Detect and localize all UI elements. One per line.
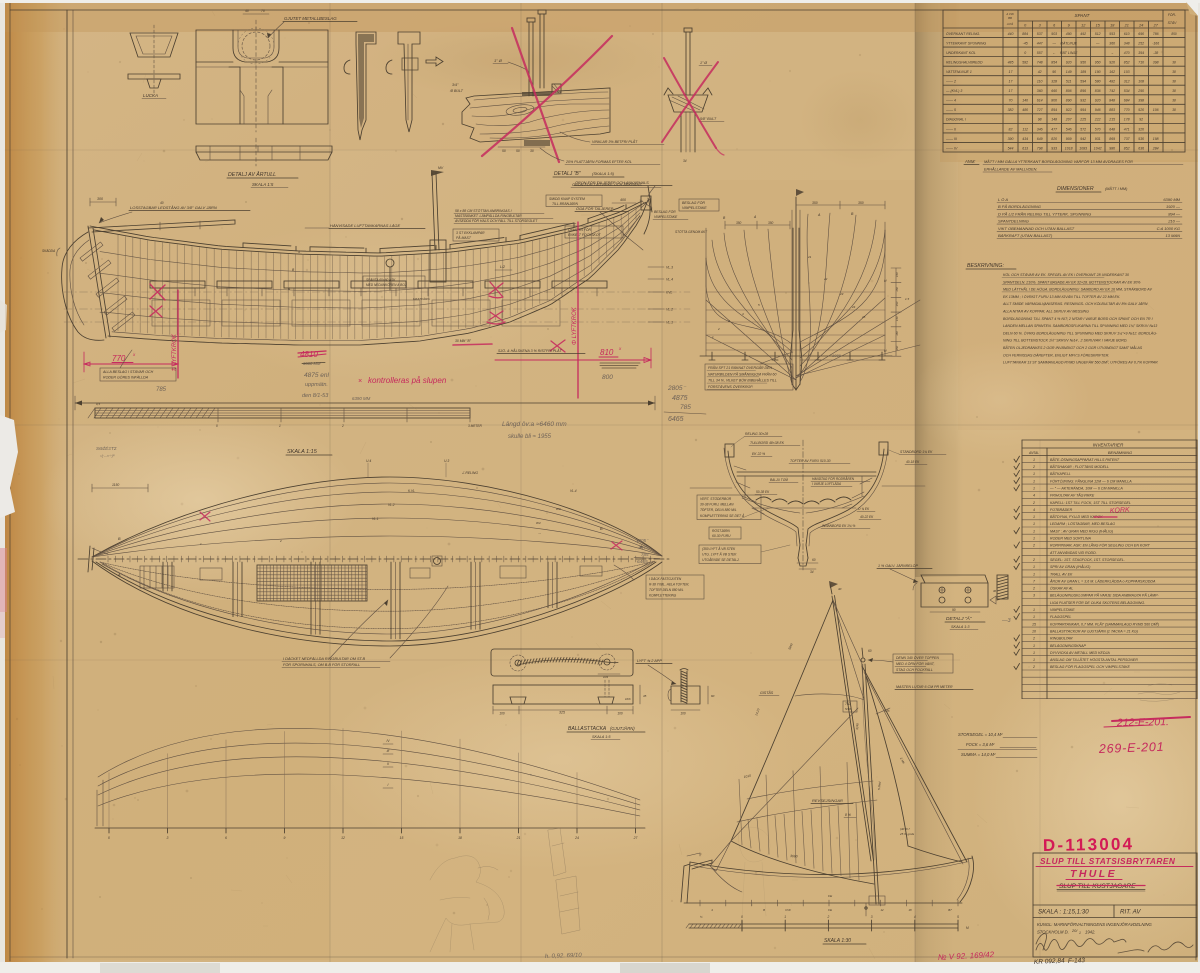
svg-text:25: 25 <box>861 315 866 319</box>
svg-text:108: 108 <box>1138 80 1144 84</box>
svg-text:1" Ø: 1" Ø <box>494 58 503 63</box>
svg-text:106: 106 <box>1153 108 1159 112</box>
svg-text:VIMPELSTAKE: VIMPELSTAKE <box>1050 608 1075 612</box>
svg-text:25 % gods: 25 % gods <box>899 832 915 836</box>
svg-text:1" Ø: 1" Ø <box>700 61 707 65</box>
svg-text:852: 852 <box>1124 60 1130 64</box>
svg-text:1: 1 <box>1033 515 1035 519</box>
svg-text:932: 932 <box>1080 99 1086 103</box>
svg-text:21: 21 <box>807 255 812 259</box>
svg-text:806: 806 <box>1066 89 1072 93</box>
svg-text:OXHORN FÖR: OXHORN FÖR <box>568 228 592 232</box>
svg-text:40-18 EK: 40-18 EK <box>906 460 920 464</box>
svg-text:BESLAG FÖR: BESLAG FÖR <box>654 210 676 214</box>
svg-text:785: 785 <box>680 404 691 411</box>
svg-text:20/: 20/ <box>1071 929 1078 933</box>
svg-text:LUFTTANKAR 13 ST SAMMANLAGD RY: LUFTTANKAR 13 ST SAMMANLAGD RYMD UNGEFÄR… <box>1003 361 1158 365</box>
svg-text:×: × <box>530 773 532 777</box>
svg-text:684: 684 <box>1124 99 1130 103</box>
svg-text:I DÄCK FASTGJUTEN: I DÄCK FASTGJUTEN <box>649 577 682 581</box>
svg-text:VL.1: VL.1 <box>372 517 379 521</box>
svg-text:485: 485 <box>1008 60 1014 64</box>
svg-text:FÖR SPORNHALS, OM B.B FÖR STOR: FÖR SPORNHALS, OM B.B FÖR STORFALL <box>283 663 360 667</box>
svg-text:544: 544 <box>1008 146 1014 150</box>
svg-text:←: ← <box>1052 51 1056 55</box>
svg-text:RELING 30×28: RELING 30×28 <box>745 432 768 436</box>
svg-text:90: 90 <box>952 608 956 612</box>
svg-text:710: 710 <box>1138 60 1144 64</box>
svg-text:2: 2 <box>717 327 720 331</box>
svg-text:(GJUTJÄRN): (GJUTJÄRN) <box>610 726 635 731</box>
svg-text:≈(·↔×·÷) ͫ: ≈(·↔×·÷) ͫ <box>100 454 116 458</box>
svg-text:III: III <box>387 749 390 753</box>
svg-text:6465: 6465 <box>637 559 648 565</box>
svg-text:DELN 60 %. ÖVRIG BORDLÄGGNING: DELN 60 %. ÖVRIG BORDLÄGGNING TILL SPUNN… <box>1003 331 1158 335</box>
svg-text:O ¾ EK: O ¾ EK <box>858 507 870 511</box>
svg-text:C:A 1000 KG: C:A 1000 KG <box>1157 226 1180 231</box>
svg-text:50-38 EK: 50-38 EK <box>756 490 770 494</box>
svg-text:482: 482 <box>1109 80 1115 84</box>
svg-text:LIGA PLATSER FÖR DE OLIKA SKOT: LIGA PLATSER FÖR DE OLIKA SKOTENS BELÄGG… <box>1050 601 1145 605</box>
svg-text:2: 2 <box>1032 637 1035 641</box>
svg-text:492: 492 <box>1080 32 1086 36</box>
svg-text:440: 440 <box>1008 32 1014 36</box>
svg-text:A: A <box>817 213 821 217</box>
svg-text:UTG. LYFT Å VB STEK: UTG. LYFT Å VB STEK <box>702 552 737 557</box>
svg-text:BESLAG FÖR FLAGGSPEL OCH VIMPE: BESLAG FÖR FLAGGSPEL OCH VIMPELSTAKE <box>1050 665 1131 669</box>
svg-text:480: 480 <box>1022 108 1028 112</box>
svg-text:30: 30 <box>993 589 997 593</box>
svg-text:L Ö A: L Ö A <box>998 197 1008 202</box>
svg-text:uppmätn.: uppmätn. <box>305 382 328 388</box>
svg-text:SPANT: SPANT <box>1075 13 1091 18</box>
svg-text:KOMPLETTERING: KOMPLETTERING <box>649 594 677 598</box>
svg-text:346: 346 <box>1037 127 1043 131</box>
svg-text:894 —: 894 — <box>1168 211 1181 216</box>
svg-text:350: 350 <box>858 201 864 205</box>
svg-text:1: 1 <box>1033 537 1035 541</box>
svg-text:A PÅ: A PÅ <box>1006 21 1013 26</box>
svg-text:1083: 1083 <box>1079 146 1087 150</box>
svg-text:GJUTET METALLBESLAG: GJUTET METALLBESLAG <box>284 16 337 21</box>
svg-text:I: I <box>388 783 389 787</box>
svg-text:2: 2 <box>1032 465 1035 469</box>
svg-text:3240: 3240 <box>855 723 860 730</box>
svg-text:24: 24 <box>1138 24 1143 28</box>
svg-text:STÄV: STÄV <box>1168 21 1178 25</box>
svg-text:SUMMA = 14,0 M²: SUMMA = 14,0 M² <box>961 752 996 757</box>
svg-text:↔: ↔ <box>538 531 541 535</box>
svg-text:SKÄDDA: SKÄDDA <box>42 249 55 253</box>
svg-text:ATT ANVÄNDAS VID RODD.: ATT ANVÄNDAS VID RODD. <box>1049 551 1097 555</box>
svg-text:34: 34 <box>683 159 687 163</box>
svg-text:MASTFÄRG: MASTFÄRG <box>413 297 430 301</box>
svg-text:BESLAG FÖR: BESLAG FÖR <box>682 201 705 205</box>
svg-text:770: 770 <box>1124 108 1130 112</box>
svg-text:40: 40 <box>838 587 842 591</box>
svg-text:12: 12 <box>341 836 345 840</box>
svg-text:6390 MM: 6390 MM <box>1163 197 1180 202</box>
svg-text:21: 21 <box>516 836 521 840</box>
svg-text:(350 LYFT Å VB STEK: (350 LYFT Å VB STEK <box>702 546 736 551</box>
svg-text:90: 90 <box>1052 70 1056 74</box>
svg-text:DETALJ "B": DETALJ "B" <box>554 171 581 177</box>
svg-text:ÖRON FÖR TALJEREP OCH ANKARHAL: ÖRON FÖR TALJEREP OCH ANKARHALS <box>575 181 649 185</box>
svg-text:-45: -45 <box>1023 41 1028 45</box>
svg-text:150: 150 <box>895 272 899 277</box>
svg-text:98: 98 <box>1038 118 1042 122</box>
svg-text:SKALA 1:30: SKALA 1:30 <box>824 938 851 944</box>
svg-text:U.4: U.4 <box>366 459 371 463</box>
svg-text:6390 MM: 6390 MM <box>352 396 371 401</box>
svg-text:594: 594 <box>1080 80 1086 84</box>
svg-text:—— II: —— II <box>945 127 956 131</box>
svg-text:SPRI AV GRAN (IHÅLIG): SPRI AV GRAN (IHÅLIG) <box>1050 564 1090 569</box>
svg-text:HANDTAG FÖR RODRÅREN: HANDTAG FÖR RODRÅREN <box>812 476 855 481</box>
svg-text:1: 1 <box>1033 458 1035 462</box>
svg-text:STORSEGEL = 10,4 M²: STORSEGEL = 10,4 M² <box>958 732 1003 737</box>
svg-text:100: 100 <box>680 712 686 716</box>
svg-text:TILL 34 %, VILKET BÖR BIBEHÅLL: TILL 34 %, VILKET BÖR BIBEHÅLLES TILL <box>708 378 777 383</box>
svg-text:178: 178 <box>1124 118 1130 122</box>
svg-text:150: 150 <box>895 316 899 321</box>
svg-text:DIAGONAL I: DIAGONAL I <box>946 118 966 122</box>
svg-text:1: 1 <box>1033 486 1035 490</box>
svg-text:(MÅTT I MM): (MÅTT I MM) <box>1105 186 1128 191</box>
svg-text:W3: W3 <box>556 507 561 511</box>
svg-text:636: 636 <box>1138 146 1144 150</box>
svg-text:909: 909 <box>1066 137 1072 141</box>
svg-text:553: 553 <box>1109 32 1115 36</box>
svg-text:92: 92 <box>1139 118 1143 122</box>
svg-text:3660: 3660 <box>790 854 798 859</box>
svg-text:572: 572 <box>1080 127 1086 131</box>
svg-text:BENÄMNING: BENÄMNING <box>1108 450 1132 455</box>
svg-text:SKALA : 1:15,1:30: SKALA : 1:15,1:30 <box>1038 909 1089 916</box>
svg-text:MED LÄTTHÅL I DE HÖGA. BORDLÄG: MED LÄTTHÅL I DE HÖGA. BORDLÄGGNING: SAM… <box>1003 287 1152 292</box>
svg-text:AVSEDDA FÖR HALS OCH FALL TILL: AVSEDDA FÖR HALS OCH FALL TILL STORSEGLE… <box>454 219 538 223</box>
svg-text:348: 348 <box>1124 41 1130 45</box>
svg-text:II: II <box>387 762 389 766</box>
svg-text:150: 150 <box>895 345 899 350</box>
svg-text:den 8/1-53: den 8/1-53 <box>302 393 329 399</box>
svg-text:883: 883 <box>1109 108 1115 112</box>
svg-text:434: 434 <box>1022 137 1028 141</box>
svg-text:312: 312 <box>1124 80 1130 84</box>
svg-text:104: 104 <box>603 675 608 679</box>
svg-text:70: 70 <box>1009 99 1013 103</box>
svg-text:STAG OCH FOCKFALL: STAG OCH FOCKFALL <box>896 668 933 672</box>
svg-text:5 Med: 5 Med <box>877 781 882 790</box>
svg-text:950: 950 <box>1095 60 1101 64</box>
svg-text:350: 350 <box>736 221 742 225</box>
svg-text:TOFTER AV FURU 510-30: TOFTER AV FURU 510-30 <box>790 459 831 463</box>
svg-text:210 —: 210 — <box>1167 219 1181 224</box>
svg-text:150: 150 <box>895 331 899 336</box>
svg-text:648: 648 <box>1109 127 1115 131</box>
svg-text:RODER GÖRES INFÄLLDA: RODER GÖRES INFÄLLDA <box>103 376 149 380</box>
svg-text:660: 660 <box>1051 89 1057 93</box>
svg-text:(SKALA 1:5): (SKALA 1:5) <box>592 171 615 176</box>
svg-text:38: 38 <box>1172 108 1176 112</box>
svg-text:58 x 88 CM STÖTTAN ANBRINGAS I: 58 x 88 CM STÖTTAN ANBRINGAS I <box>455 209 512 213</box>
svg-text:950: 950 <box>1080 60 1086 64</box>
svg-text:18: 18 <box>908 908 912 912</box>
svg-text:2: 2 <box>827 915 830 919</box>
svg-text:EK 22 %: EK 22 % <box>752 452 765 456</box>
svg-text:18: 18 <box>458 836 462 840</box>
svg-text:38: 38 <box>1172 89 1176 93</box>
svg-text:FRÅN SPT 21 RÄKNAT ÖVERGÅR DEN: FRÅN SPT 21 RÄKNAT ÖVERGÅR DEN <box>708 365 772 370</box>
svg-text:RÄTLINJE: RÄTLINJE <box>1060 41 1077 45</box>
svg-text:42: 42 <box>1038 70 1042 74</box>
svg-text:511: 511 <box>1066 80 1072 84</box>
svg-text:-166: -166 <box>1152 41 1159 45</box>
svg-text:VL.1: VL.1 <box>666 321 673 325</box>
svg-text:149: 149 <box>1066 70 1072 74</box>
svg-text:MV: MV <box>438 166 444 170</box>
svg-text:22: 22 <box>823 277 828 281</box>
svg-text:13 MAN: 13 MAN <box>1166 233 1181 238</box>
svg-text:360: 360 <box>1109 41 1115 45</box>
svg-text:50: 50 <box>516 149 520 153</box>
svg-text:NING TILL BOTTENSTOCK 1½" SKRU: NING TILL BOTTENSTOCK 1½" SKRUV №14 , 2 … <box>1003 339 1127 343</box>
svg-text:SJÖ- & HÅLSKENA 3 % RISTFRI PL: SJÖ- & HÅLSKENA 3 % RISTFRI PLÅT <box>498 348 563 353</box>
svg-text:INNANBORD EK 1¾ %: INNANBORD EK 1¾ % <box>822 524 855 528</box>
svg-text:820: 820 <box>1051 137 1057 141</box>
svg-text:38: 38 <box>1172 99 1176 103</box>
svg-text:5/8" BULT: 5/8" BULT <box>700 117 717 121</box>
svg-text:FÖRSTÄVENS ÖVERKROP.: FÖRSTÄVENS ÖVERKROP. <box>708 385 753 389</box>
svg-text:SӨŹĖΞΤƩ: SӨŹĖΞΤƩ <box>96 445 117 451</box>
svg-text:1150: 1150 <box>112 483 119 487</box>
svg-text:KOPPARTANKAR, 0,7 MM. PLÅT (SA: KOPPARTANKAR, 0,7 MM. PLÅT (SAMMANLAGD R… <box>1050 621 1159 626</box>
svg-text:SKALA 1:5: SKALA 1:5 <box>592 735 611 739</box>
svg-text:1: 1 <box>1033 608 1035 612</box>
svg-text:390: 390 <box>1008 137 1014 141</box>
svg-text:2805⁻: 2805⁻ <box>667 385 686 392</box>
svg-text:470: 470 <box>1124 51 1130 55</box>
svg-text:FOCK = 3,6 M²: FOCK = 3,6 M² <box>966 742 995 747</box>
svg-text:—3: —3 <box>1001 618 1012 624</box>
svg-text:HÄNVISADE LUFTTANKARNAS LÄGE: HÄNVISADE LUFTTANKARNAS LÄGE <box>330 223 400 228</box>
svg-text:45: 45 <box>643 694 647 698</box>
svg-text:TILL BRÄNJÄRN: TILL BRÄNJÄRN <box>552 202 578 206</box>
svg-text:4: 4 <box>914 915 916 919</box>
svg-text:VINKLAR 3% BETFRI PLÅT: VINKLAR 3% BETFRI PLÅT <box>592 139 638 144</box>
svg-text:398: 398 <box>1153 60 1159 64</box>
svg-text:SLUP TILL STATSISBRYTAREN: SLUP TILL STATSISBRYTAREN <box>1040 856 1176 866</box>
svg-text:1: 1 <box>1033 651 1035 655</box>
svg-text:110: 110 <box>1037 80 1043 84</box>
svg-text:920: 920 <box>1066 60 1072 64</box>
svg-text:—— 4: —— 4 <box>945 99 956 103</box>
svg-text:ALLT SMIDE VARMGALVANISERAS. R: ALLT SMIDE VARMGALVANISERAS. RESNINGS- O… <box>1002 302 1148 306</box>
svg-text:350: 350 <box>812 201 818 205</box>
svg-text:LUCKA: LUCKA <box>143 93 158 98</box>
svg-text:2: 2 <box>1032 501 1035 505</box>
svg-text:ℒ RELING: ℒ RELING <box>462 471 478 475</box>
svg-text:12: 12 <box>880 908 884 912</box>
svg-text:850: 850 <box>1171 32 1177 36</box>
svg-text:BÅTE-ÖSNINGSAPPARAT HILLS PAT: BÅTE-ÖSNINGSAPPARAT HILLS PATENT <box>1050 457 1120 462</box>
svg-text:TOFTER, DELN 880 M/L: TOFTER, DELN 880 M/L <box>700 508 737 512</box>
svg-text:742: 742 <box>1109 89 1115 93</box>
svg-text:269-E-201: 269-E-201 <box>1098 740 1165 756</box>
svg-text:1.5: 1.5 <box>905 297 910 301</box>
svg-text:BELÄGGNINGSKNAP: BELÄGGNINGSKNAP <box>1050 644 1087 648</box>
svg-text:UTGÅENDE SE DETALJ.: UTGÅENDE SE DETALJ. <box>702 557 740 562</box>
svg-text:ANM:: ANM: <box>964 159 975 164</box>
svg-text:SEGEL: 1ST. STAGFOCK, 1ST. STO: SEGEL: 1ST. STAGFOCK, 1ST. STORSEGEL. <box>1050 558 1125 562</box>
svg-text:252: 252 <box>1137 41 1144 45</box>
svg-text:/8 BULT: /8 BULT <box>449 89 464 93</box>
svg-text:23: 23 <box>839 292 844 296</box>
svg-text:ÖSKAR AV AL: ÖSKAR AV AL <box>1050 587 1073 591</box>
svg-text:RINGBULTAR: RINGBULTAR <box>1050 637 1073 641</box>
svg-text:0: 0 <box>741 915 743 919</box>
svg-text:350: 350 <box>768 221 774 225</box>
svg-text:40: 40 <box>245 9 249 13</box>
svg-text:10%: 10% <box>625 697 631 701</box>
svg-text:38: 38 <box>1172 80 1176 84</box>
svg-text:W4: W4 <box>536 521 541 525</box>
svg-text:884: 884 <box>1022 32 1028 36</box>
svg-text:24: 24 <box>851 305 856 309</box>
svg-text:398: 398 <box>1138 99 1144 103</box>
svg-text:—: — <box>1095 41 1100 45</box>
svg-text:150: 150 <box>895 287 899 292</box>
svg-text:328: 328 <box>1051 80 1057 84</box>
svg-text:613: 613 <box>1022 146 1028 150</box>
svg-text:854: 854 <box>1051 108 1057 112</box>
svg-text:3 ST EKKLAMPAR: 3 ST EKKLAMPAR <box>456 231 485 235</box>
svg-text:931: 931 <box>1095 137 1101 141</box>
svg-text:STÄNDBORD 1¾ EK: STÄNDBORD 1¾ EK <box>900 450 933 454</box>
svg-text:NATURBILDEN PÅ SMÅNINGOM FRÅN: NATURBILDEN PÅ SMÅNINGOM FRÅN 60 <box>708 371 776 376</box>
svg-text:610: 610 <box>1124 32 1130 36</box>
svg-text:—— III: —— III <box>945 137 957 141</box>
svg-text:I DÄCKET NEDFÄLLDA RINGBULTAR: I DÄCKET NEDFÄLLDA RINGBULTAR OM ST.B <box>283 657 366 661</box>
svg-text:471: 471 <box>1124 127 1130 131</box>
svg-text:KORK: KORK <box>1110 507 1131 515</box>
svg-text:4: 4 <box>1033 508 1035 512</box>
svg-text:TRALL AV EK: TRALL AV EK <box>1050 572 1073 576</box>
svg-text:skulle bli ≈ 1955: skulle bli ≈ 1955 <box>508 434 552 440</box>
svg-text:4875: 4875 <box>638 545 649 551</box>
svg-text:LANDEN MELLAN SPANTEN. SAMBORD: LANDEN MELLAN SPANTEN. SAMBORDSFLIKARNA … <box>1003 324 1157 328</box>
svg-text:RÄT LINJE: RÄT LINJE <box>1060 51 1078 55</box>
svg-text:MED 4 ÖRN FÖR VANT,: MED 4 ÖRN FÖR VANT, <box>896 662 935 666</box>
svg-text:DETALJ AV ÅRTULL: DETALJ AV ÅRTULL <box>228 171 276 178</box>
svg-text:785: 785 <box>641 552 649 557</box>
svg-text:kontrolleras på slupen: kontrolleras på slupen <box>368 376 447 385</box>
svg-text:6465: 6465 <box>668 416 684 423</box>
svg-text:RIT. AV: RIT. AV <box>1120 909 1141 916</box>
svg-text:ANSLAG OM TILLÅTET HÖGSTA ANTA: ANSLAG OM TILLÅTET HÖGSTA ANTAL PERSONER <box>1049 657 1138 662</box>
svg-text:530: 530 <box>1138 137 1144 141</box>
svg-text:MASTBÄNKET. LÄMPÄLLDA RINGBULT: MASTBÄNKET. LÄMPÄLLDA RINGBULTAR <box>455 214 522 218</box>
svg-text:SKALA 1:5: SKALA 1:5 <box>252 182 274 187</box>
svg-text:4875: 4875 <box>672 395 688 402</box>
svg-text:1018: 1018 <box>1065 146 1073 150</box>
svg-text:2: 2 <box>341 424 344 428</box>
svg-text:27: 27 <box>1153 24 1159 28</box>
svg-text:UNDERKANT KÖL: UNDERKANT KÖL <box>946 51 976 55</box>
svg-text:1: 1 <box>1079 931 1081 935</box>
svg-text:BÅTKAPELL: BÅTKAPELL <box>1050 471 1071 476</box>
svg-text:ALLA NITAR AV KOPPAR, ALL SKRU: ALLA NITAR AV KOPPAR, ALL SKRUV AV MESSI… <box>1002 310 1089 314</box>
svg-text:KVL: KVL <box>666 291 673 295</box>
svg-text:U.3: U.3 <box>444 459 449 463</box>
svg-text:4875 enl: 4875 enl <box>304 372 329 379</box>
svg-text:40-22 EK: 40-22 EK <box>860 515 874 519</box>
svg-text:FRIHULTAR AV TÅGVIRKE: FRIHULTAR AV TÅGVIRKE <box>1050 493 1095 498</box>
svg-text:1942.: 1942. <box>1085 930 1095 935</box>
svg-text:→: → <box>1110 51 1114 55</box>
svg-text:VL.2: VL.2 <box>666 308 673 312</box>
svg-text:—— 2: —— 2 <box>945 80 956 84</box>
svg-text:F-143: F-143 <box>1068 957 1086 965</box>
svg-text:VL.4: VL.4 <box>666 278 673 282</box>
svg-text:954: 954 <box>1080 108 1086 112</box>
svg-text:R-38 YXBL. HELA TOFTER,: R-38 YXBL. HELA TOFTER, <box>649 583 689 587</box>
svg-text:836: 836 <box>1095 89 1101 93</box>
svg-text:— (KVL) 3: — (KVL) 3 <box>945 89 962 93</box>
svg-text:325: 325 <box>559 711 565 715</box>
svg-text:800: 800 <box>1051 99 1057 103</box>
svg-text:360: 360 <box>1037 89 1043 93</box>
svg-text:649: 649 <box>1037 137 1043 141</box>
svg-text:BALLASTTACKOR AV GJUTJÄRN (1: BALLASTTACKOR AV GJUTJÄRN (1 TACKA = 21 … <box>1050 629 1138 633</box>
svg-text:3/4": 3/4" <box>452 83 459 87</box>
svg-text:3: 3 <box>1033 594 1035 598</box>
svg-text:198: 198 <box>1153 137 1159 141</box>
svg-text:0,5: 0,5 <box>96 402 101 406</box>
svg-text:ENKELT FOCKSKOT: ENKELT FOCKSKOT <box>568 233 601 237</box>
svg-text:856: 856 <box>1080 89 1086 93</box>
svg-text:225: 225 <box>1079 118 1086 122</box>
svg-text:B: B <box>763 908 765 912</box>
svg-text:REVSEJSINGAR: REVSEJSINGAR <box>812 798 843 803</box>
svg-text:ERHÅLLANDE AV MALLVDEN.: ERHÅLLANDE AV MALLVDEN. <box>984 167 1037 172</box>
svg-text:BORDLÄGGNING TILL SPANT 4 % NI: BORDLÄGGNING TILL SPANT 4 % NIT; 2 NITAR… <box>1003 317 1153 321</box>
svg-text:60: 60 <box>711 694 715 698</box>
svg-text:STOCKHOLM D.: STOCKHOLM D. <box>1037 930 1069 935</box>
svg-text:BALLASTTACKA: BALLASTTACKA <box>568 726 607 732</box>
svg-text:30-38 FURU, MELLAN: 30-38 FURU, MELLAN <box>700 503 734 507</box>
svg-text:2: 2 <box>1032 587 1035 591</box>
svg-text:1: 1 <box>1033 658 1035 662</box>
svg-text:534: 534 <box>1124 89 1130 93</box>
svg-text:DIMENSIONER: DIMENSIONER <box>1057 186 1094 192</box>
svg-text:LEDARM ; LÖSTAGBAR, MED BESLAG: LEDARM ; LÖSTAGBAR, MED BESLAG <box>1050 522 1115 526</box>
svg-text:DETALJ "Ä": DETALJ "Ä" <box>946 615 972 622</box>
svg-text:STÖTTA GENOM AKT: STÖTTA GENOM AKT <box>675 230 708 234</box>
svg-text:27: 27 <box>633 836 638 840</box>
svg-text:15: 15 <box>400 836 404 840</box>
svg-text:1: 1 <box>1033 565 1035 569</box>
svg-text:189: 189 <box>1080 70 1086 74</box>
svg-text:VERT. STÖDERBOR: VERT. STÖDERBOR <box>700 497 732 501</box>
svg-text:852: 852 <box>1124 146 1130 150</box>
svg-text:MAST : AV GRAN MED RIGG (IH: MAST : AV GRAN MED RIGG (IHÅLIG) <box>1050 528 1113 533</box>
svg-text:1: 1 <box>1033 479 1035 483</box>
svg-text:L/2: L/2 <box>500 265 505 269</box>
svg-text:CE: CE <box>828 908 832 912</box>
svg-text:LYFT ⇆ 2 APP: LYFT ⇆ 2 APP <box>637 659 662 663</box>
svg-text:VIMPELSTAKE: VIMPELSTAKE <box>682 206 707 210</box>
